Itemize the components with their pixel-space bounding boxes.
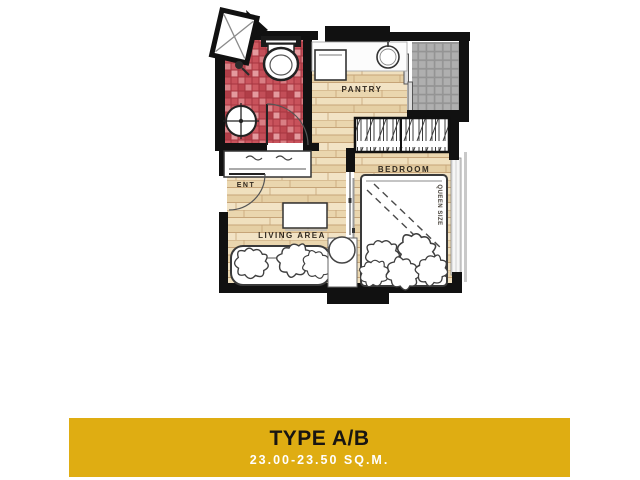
coffee-table (283, 203, 327, 230)
label-queen-size: QUEEN SIZE (436, 184, 442, 225)
label-living-area: LIVING AREA (258, 231, 326, 240)
bedroom-sliding-partition (349, 172, 356, 241)
sofa (231, 239, 336, 285)
bedroom-window (451, 158, 461, 275)
type-banner: TYPE A/B 23.00-23.50 SQ.M. (69, 418, 570, 477)
unit-type-title: TYPE A/B (269, 428, 369, 450)
floor-plan-drawing: ENT LIVING AREA BEDROOM PANTRY QUEEN SIZ… (0, 0, 640, 480)
label-bedroom: BEDROOM (378, 165, 430, 174)
balcony-floor (412, 42, 459, 110)
side-table (328, 237, 357, 287)
label-ent: ENT (237, 182, 256, 189)
label-pantry: PANTRY (342, 85, 383, 94)
toilet (261, 36, 301, 80)
stove-unit (315, 50, 346, 80)
floor-plan-page: ENT LIVING AREA BEDROOM PANTRY QUEEN SIZ… (0, 0, 640, 480)
window-ledge (464, 152, 467, 282)
unit-area-subtitle: 23.00-23.50 SQ.M. (250, 453, 390, 467)
wardrobe (355, 118, 449, 152)
shower (212, 10, 257, 63)
